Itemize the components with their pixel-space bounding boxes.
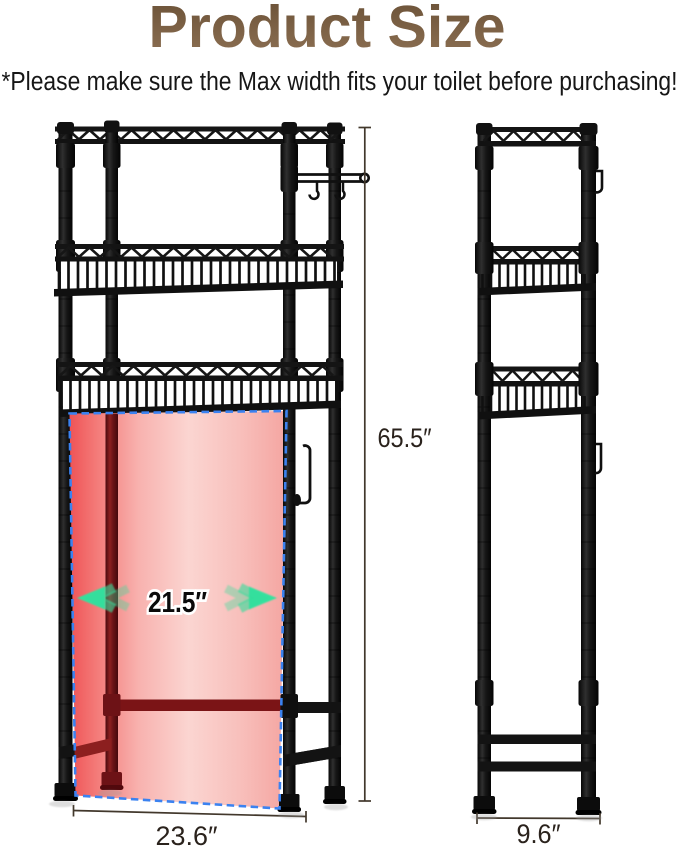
svg-text:Product Size: Product Size (149, 0, 506, 60)
svg-text:65.5″: 65.5″ (378, 423, 432, 453)
svg-text:*Please make sure the Max widt: *Please make sure the Max width fits you… (2, 68, 678, 96)
svg-text:23.6″: 23.6″ (156, 821, 218, 846)
svg-text:21.5″: 21.5″ (148, 587, 207, 619)
svg-text:9.6″: 9.6″ (517, 819, 561, 846)
